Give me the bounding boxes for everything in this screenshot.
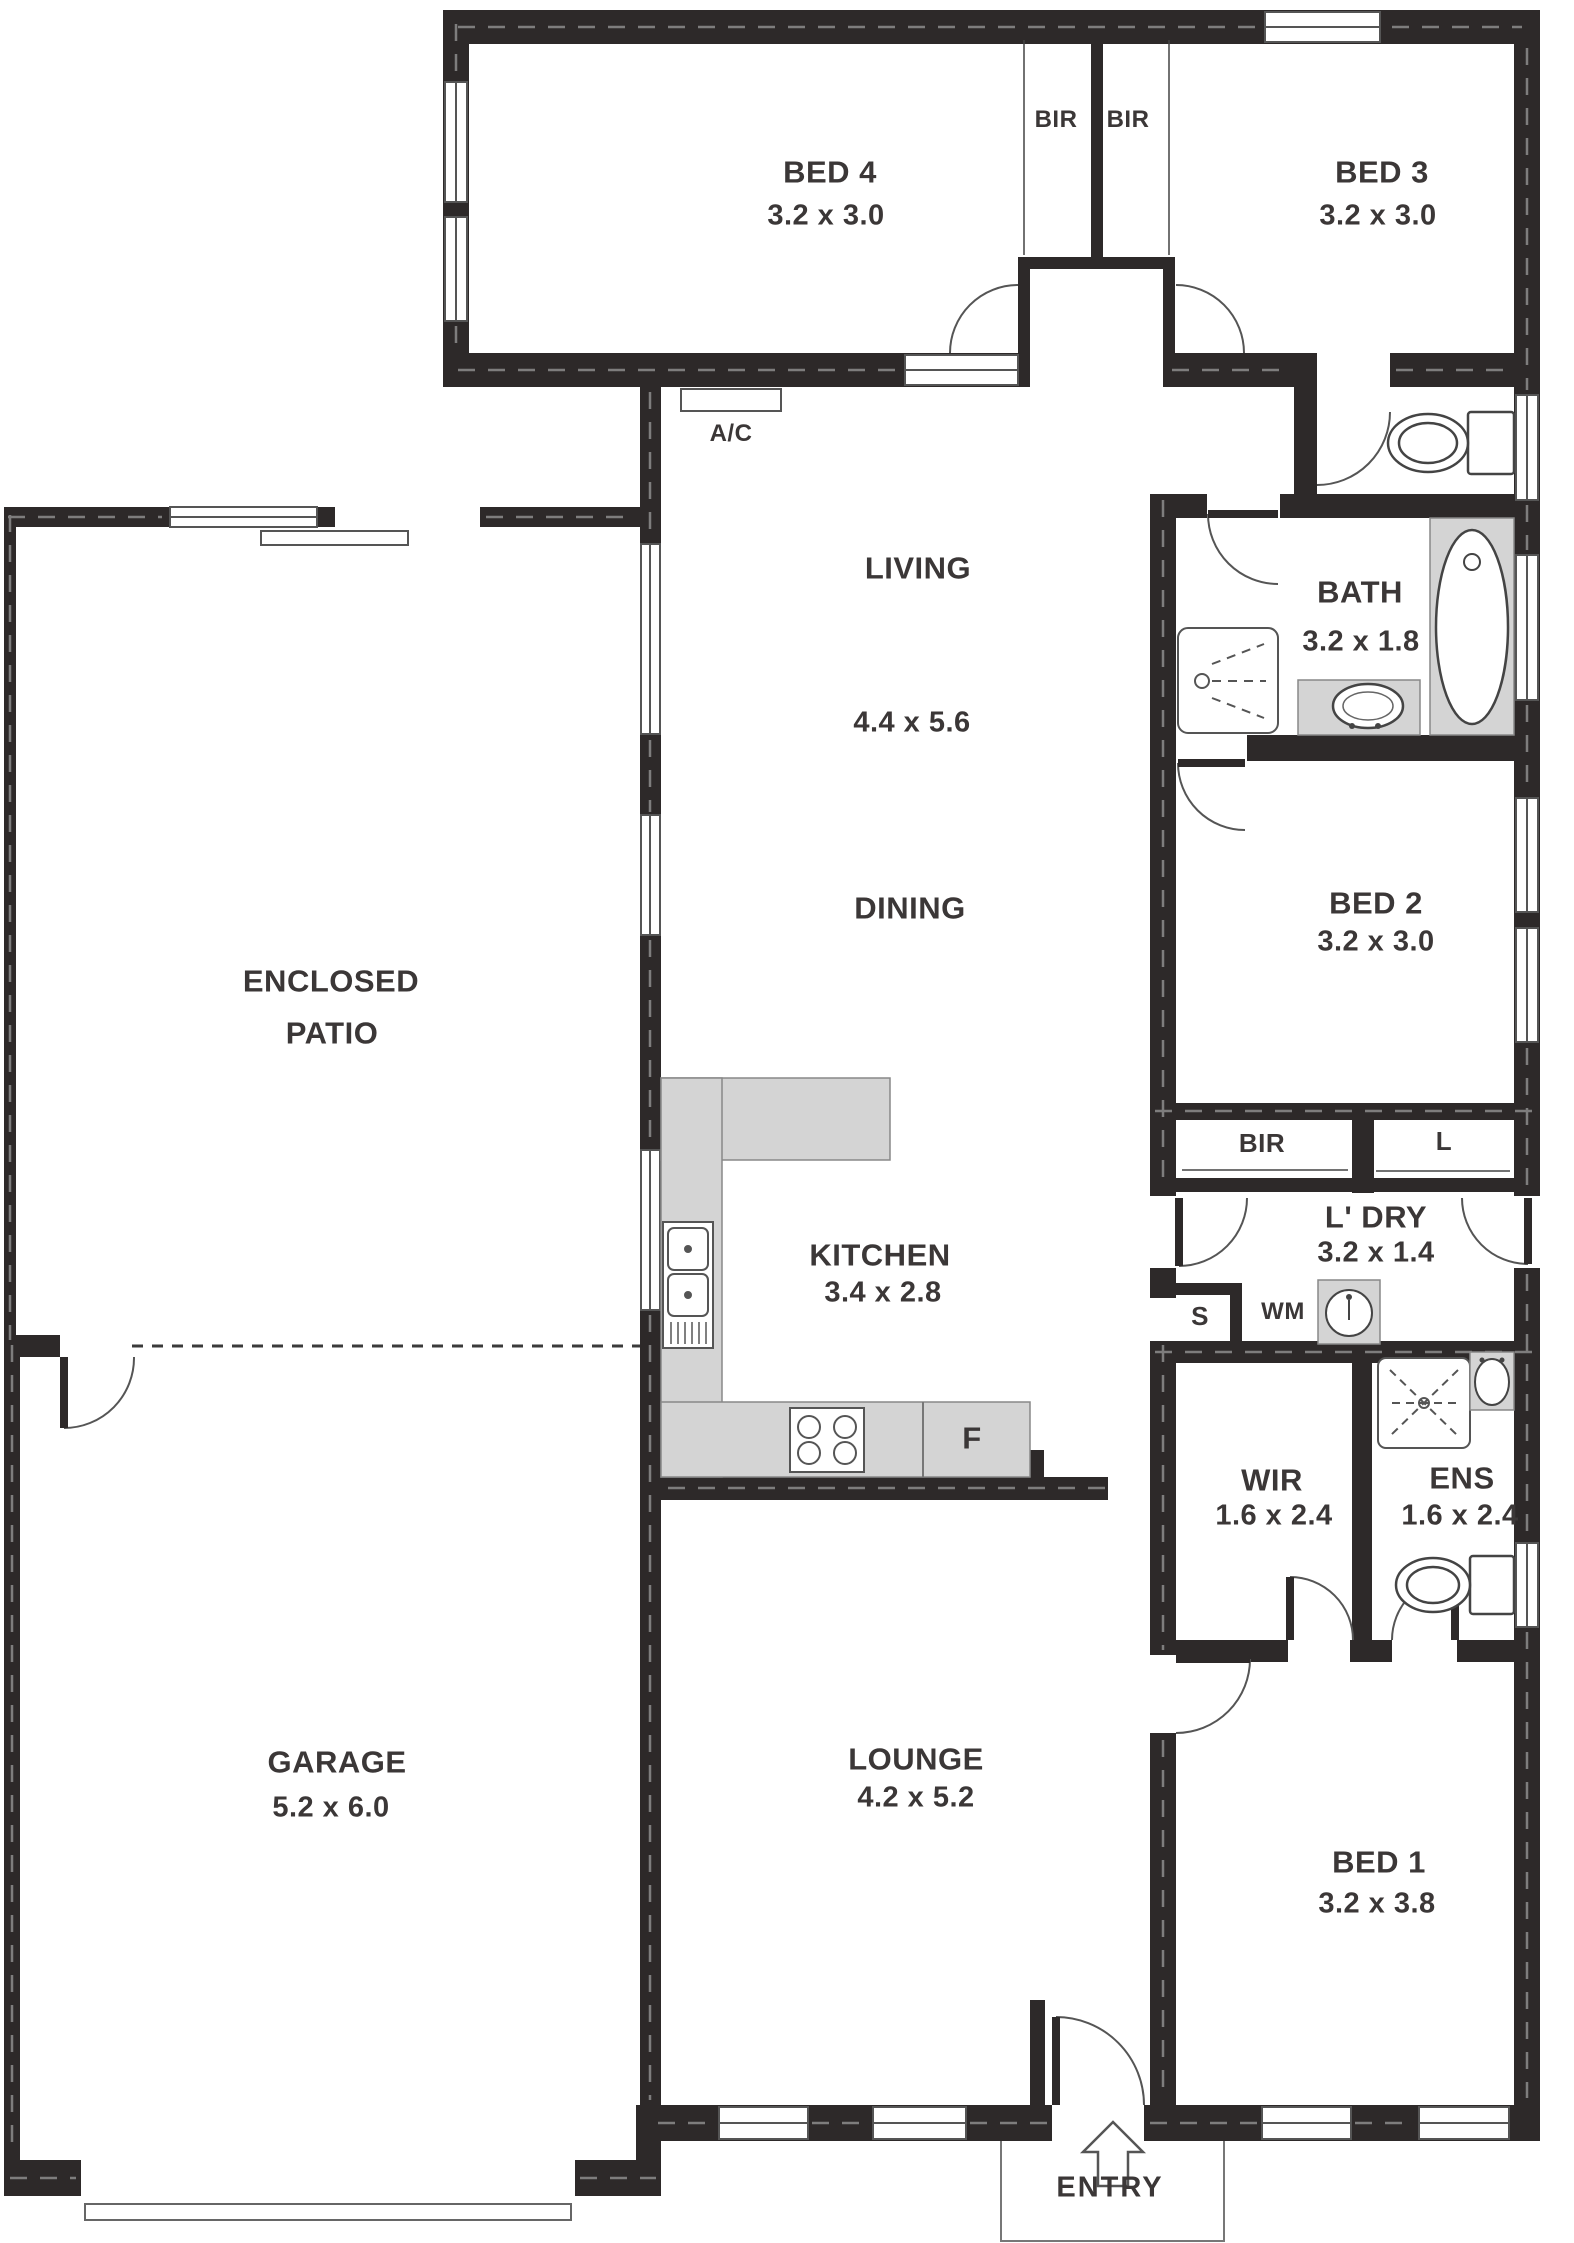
cooktop-icon <box>790 1408 864 1472</box>
window-lounge-1 <box>719 2107 808 2139</box>
bath-vanity-icon <box>1298 680 1420 735</box>
bed2-door-arc <box>1178 763 1245 830</box>
window-bed4-left-1 <box>445 82 467 202</box>
floor-plan: BED 4 3.2 x 3.0 BIR BIR BED 3 3.2 x 3.0 … <box>0 0 1574 2243</box>
fridge-label: F <box>962 1423 981 1454</box>
bir-right-label: BIR <box>1107 108 1150 132</box>
doors <box>64 285 1528 2105</box>
opening-toilet-door <box>1317 353 1390 387</box>
ac-unit <box>681 389 781 411</box>
toilet-icon <box>1388 412 1514 474</box>
laundry-trough-icon <box>1318 1280 1380 1344</box>
bed3-dims: 3.2 x 3.0 <box>1319 202 1436 231</box>
opening-beds-hall-arch <box>1030 353 1163 387</box>
entry-label: ENTRY <box>1056 2174 1163 2203</box>
opening-store <box>1150 1298 1176 1341</box>
bed2-dims: 3.2 x 3.0 <box>1317 928 1434 957</box>
wall-wir-ens-bottom-b <box>1350 1640 1392 1662</box>
window-bed1-1 <box>1262 2107 1351 2139</box>
wall-wir-ens-divider <box>1352 1363 1372 1662</box>
bed4-dims: 3.2 x 3.0 <box>767 202 884 231</box>
wall-bir-stub-left <box>1018 257 1030 387</box>
kitchen-label: KITCHEN <box>809 1240 950 1271</box>
wm-label: WM <box>1261 1300 1305 1324</box>
arch-door-right-arc <box>1176 285 1244 353</box>
window-ens-right <box>1516 1543 1538 1627</box>
window-toilet-right <box>1516 395 1538 500</box>
ens-vanity-icon <box>1470 1352 1514 1410</box>
ens-dims: 1.6 x 2.4 <box>1401 1502 1518 1531</box>
bath-label: BATH <box>1317 577 1403 608</box>
wall-entry-stub <box>1030 2000 1045 2105</box>
window-living-patio-1 <box>641 544 660 734</box>
wall-store-top <box>1150 1283 1242 1295</box>
window-bath-right <box>1516 555 1538 700</box>
wall-closet-row-divider <box>1352 1103 1374 1193</box>
bed1-label: BED 1 <box>1332 1847 1426 1878</box>
entry-door-arc <box>1056 2017 1144 2105</box>
wall-patio-top-a <box>4 507 170 527</box>
window-lounge-2 <box>873 2107 966 2139</box>
bed1-door-arc <box>1176 1659 1250 1733</box>
opening-patio-garage-door <box>60 1335 132 1357</box>
patio-garage-door-arc <box>64 1357 134 1428</box>
laundry-label: L' DRY <box>1325 1202 1427 1233</box>
opening-bed2-door <box>1176 735 1247 761</box>
opening-laundry-door-left <box>1150 1196 1176 1268</box>
wall-bir-bottom <box>1018 257 1175 269</box>
ens-shower-icon <box>1378 1358 1470 1448</box>
window-bed2-right-2 <box>1516 928 1538 1042</box>
lounge-dims: 4.2 x 5.2 <box>857 1784 974 1813</box>
wir-label: WIR <box>1241 1465 1303 1496</box>
wall-patio-top-cap <box>317 507 335 527</box>
bath-door-arc <box>1208 514 1278 584</box>
garage-label: GARAGE <box>267 1747 406 1778</box>
kitchen-dims: 3.4 x 2.8 <box>824 1279 941 1308</box>
window-bed1-2 <box>1419 2107 1509 2139</box>
living-dims: 4.4 x 5.6 <box>853 709 970 738</box>
store-label: S <box>1191 1303 1209 1329</box>
bed4-label: BED 4 <box>783 157 877 188</box>
wall-store-right <box>1230 1283 1242 1353</box>
wir-door-arc <box>1290 1577 1353 1640</box>
laundry-dims: 3.2 x 1.4 <box>1317 1239 1434 1268</box>
linen-label: L <box>1436 1128 1452 1154</box>
bed3-label: BED 3 <box>1335 157 1429 188</box>
opening-ens-door <box>1392 1640 1457 1662</box>
window-bed2-right-1 <box>1516 798 1538 912</box>
bath-shower-icon <box>1178 628 1278 733</box>
window-top-bed3 <box>1265 12 1380 42</box>
wir-dims: 1.6 x 2.4 <box>1215 1502 1332 1531</box>
bed2-label: BED 2 <box>1329 888 1423 919</box>
bed1-dims: 3.2 x 3.8 <box>1318 1890 1435 1919</box>
garage-dims: 5.2 x 6.0 <box>272 1794 389 1823</box>
ens-label: ENS <box>1429 1463 1494 1494</box>
laundry-door-left-arc <box>1179 1198 1247 1266</box>
opening-bed1-door <box>1150 1655 1176 1733</box>
ens-toilet-icon <box>1396 1556 1514 1614</box>
bir-left-label: BIR <box>1035 108 1078 132</box>
opening-wir-door <box>1288 1640 1350 1662</box>
window-living-patio-2 <box>641 815 660 935</box>
wall-bir-stub-right <box>1163 257 1175 387</box>
window-kitchen-patio <box>641 1150 660 1310</box>
window-patio-slider-panel <box>261 531 408 545</box>
ac-label: A/C <box>710 422 753 446</box>
wall-wir-ens-bottom-c <box>1457 1640 1514 1662</box>
window-patio-top <box>170 507 317 527</box>
patio-label-1: ENCLOSED <box>243 966 419 997</box>
wall-bir-divider <box>1091 36 1103 257</box>
dining-label: DINING <box>854 893 966 924</box>
bath-dims: 3.2 x 1.8 <box>1302 628 1419 657</box>
arch-door-left-arc <box>950 285 1018 353</box>
kitchen-sink-icon <box>663 1222 713 1348</box>
patio-label-2: PATIO <box>286 1018 379 1049</box>
toilet-door-arc <box>1317 412 1390 485</box>
window-bed4-hall <box>905 355 1018 385</box>
bir-bed2-label: BIR <box>1239 1130 1285 1156</box>
living-label: LIVING <box>865 553 971 584</box>
garage-door <box>85 2204 571 2220</box>
bathtub-icon <box>1430 518 1514 735</box>
wall-garage-lounge-step <box>636 2105 661 2196</box>
lounge-label: LOUNGE <box>848 1744 984 1775</box>
wall-fridge-stub <box>1030 1450 1044 1477</box>
window-bed4-left-2 <box>445 217 467 321</box>
